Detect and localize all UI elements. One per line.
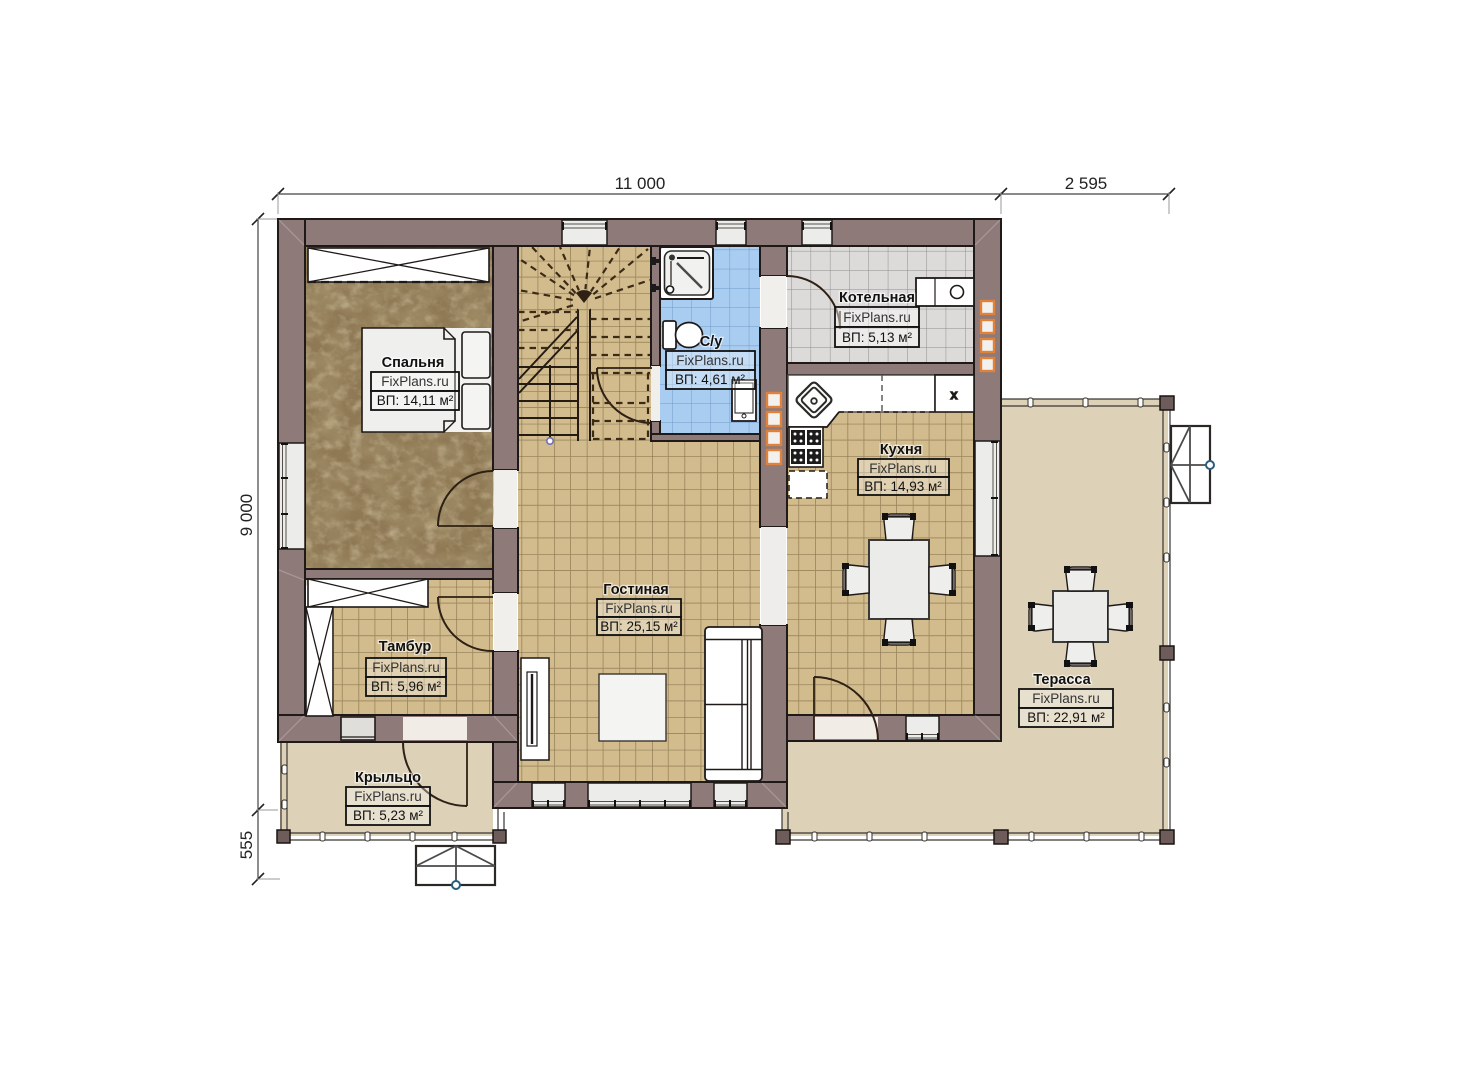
svg-text:FixPlans.ru: FixPlans.ru — [372, 660, 440, 675]
svg-text:ВП: 22,91 м²: ВП: 22,91 м² — [1027, 710, 1105, 725]
svg-text:FixPlans.ru: FixPlans.ru — [605, 601, 673, 616]
svg-text:FixPlans.ru: FixPlans.ru — [843, 310, 911, 325]
svg-text:Кухня: Кухня — [880, 442, 922, 458]
svg-text:ВП: 4,61 м²: ВП: 4,61 м² — [675, 372, 746, 387]
svg-text:2 595: 2 595 — [1065, 174, 1108, 193]
svg-text:ВП: 25,15 м²: ВП: 25,15 м² — [600, 619, 678, 634]
svg-text:С/у: С/у — [700, 334, 723, 350]
svg-text:Спальня: Спальня — [382, 355, 445, 371]
svg-text:FixPlans.ru: FixPlans.ru — [1032, 691, 1100, 706]
svg-text:ВП: 14,11 м²: ВП: 14,11 м² — [377, 393, 454, 408]
svg-text:Гостиная: Гостиная — [603, 582, 669, 598]
svg-text:ВП: 14,93 м²: ВП: 14,93 м² — [864, 479, 942, 494]
svg-text:ВП: 5,13 м²: ВП: 5,13 м² — [842, 330, 913, 345]
svg-text:Котельная: Котельная — [839, 290, 915, 306]
svg-text:FixPlans.ru: FixPlans.ru — [354, 789, 422, 804]
svg-text:FixPlans.ru: FixPlans.ru — [676, 353, 744, 368]
svg-text:FixPlans.ru: FixPlans.ru — [381, 374, 449, 389]
svg-text:555: 555 — [237, 831, 256, 859]
svg-text:Крыльцо: Крыльцо — [355, 770, 421, 786]
svg-text:ВП: 5,23 м²: ВП: 5,23 м² — [353, 808, 424, 823]
svg-text:Терасса: Терасса — [1033, 672, 1091, 688]
svg-text:Тамбур: Тамбур — [379, 639, 432, 655]
svg-text:ВП: 5,96 м²: ВП: 5,96 м² — [371, 679, 442, 694]
svg-text:9 000: 9 000 — [237, 494, 256, 537]
svg-text:FixPlans.ru: FixPlans.ru — [869, 461, 937, 476]
svg-text:11 000: 11 000 — [615, 174, 666, 193]
svg-text:x: x — [951, 387, 958, 402]
